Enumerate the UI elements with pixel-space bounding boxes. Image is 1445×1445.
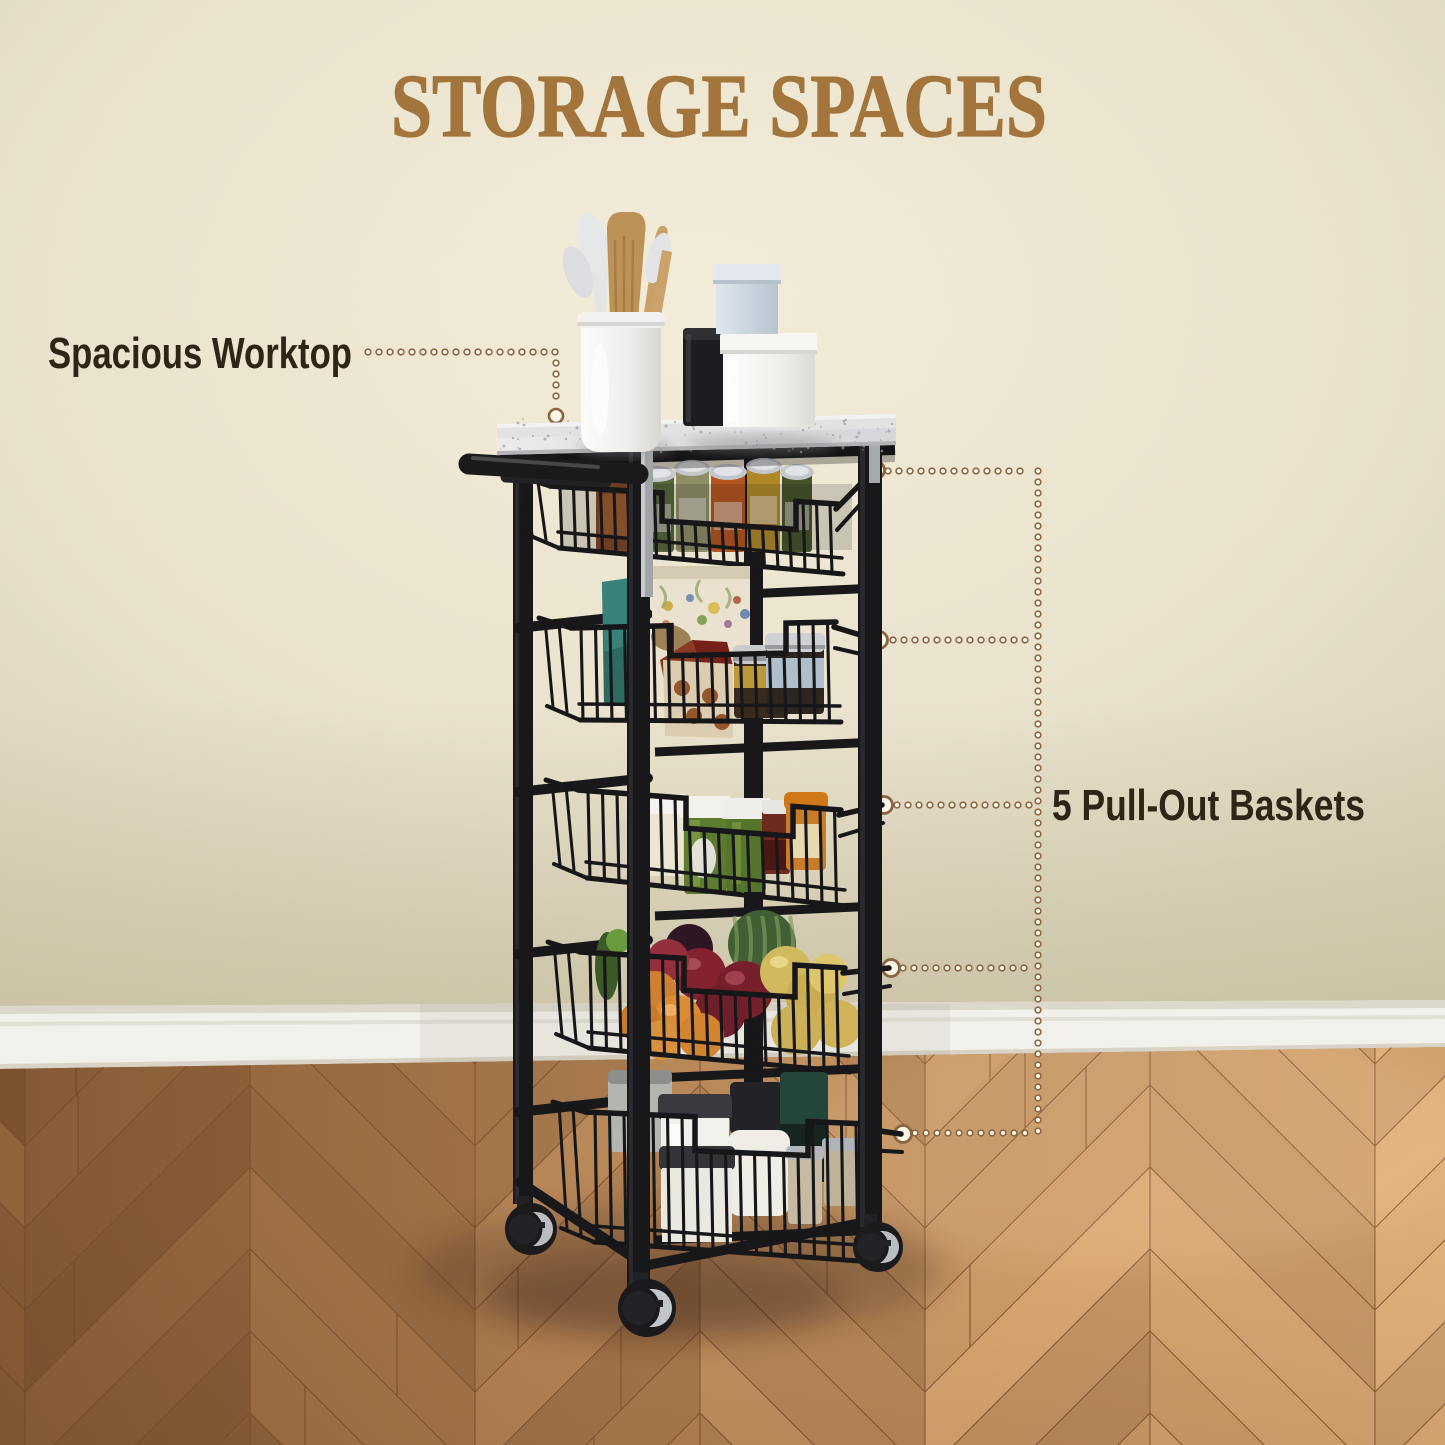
svg-text:Spacious Worktop: Spacious Worktop <box>48 329 352 378</box>
svg-text:5 Pull-Out Baskets: 5 Pull-Out Baskets <box>1052 781 1365 830</box>
svg-text:STORAGE SPACES: STORAGE SPACES <box>391 57 1047 156</box>
